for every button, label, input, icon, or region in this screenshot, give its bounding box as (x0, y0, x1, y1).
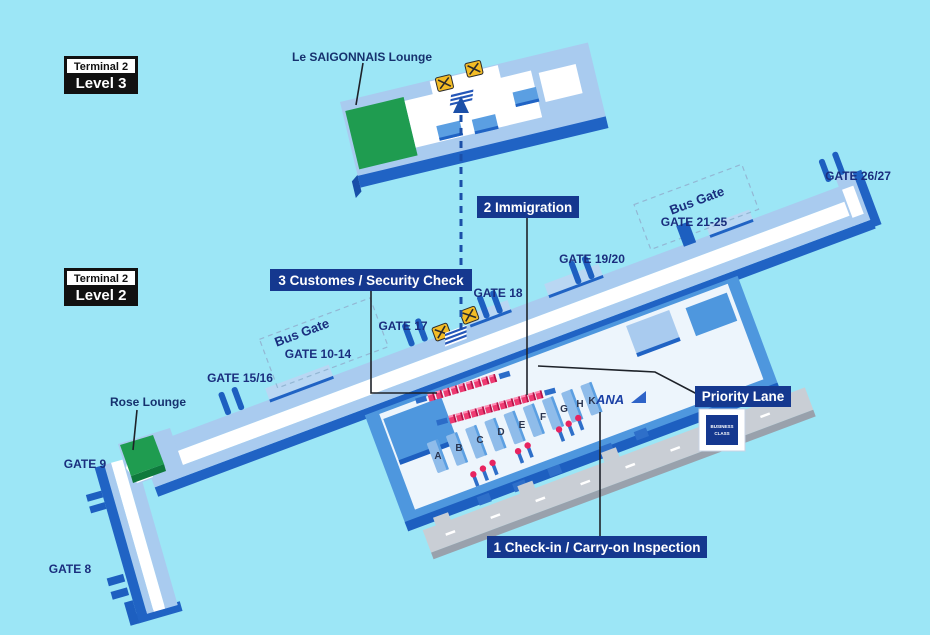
counter-a-label: A (434, 451, 441, 462)
customs-security-label: 3 Customes / Security Check (278, 273, 464, 288)
saigonnais-lounge-label: Le SAIGONNAIS Lounge (292, 50, 432, 64)
gate-9-label: GATE 9 (64, 457, 107, 471)
gate-19-20-label: GATE 19/20 (559, 252, 625, 266)
escalator-icon (465, 60, 484, 77)
escalator-icon (435, 74, 454, 91)
callout-checkin: 1 Check-in / Carry-on Inspection (487, 536, 707, 558)
rose-lounge-label: Rose Lounge (110, 395, 186, 409)
counter-g-label: G (560, 404, 568, 415)
counter-d-label: D (497, 427, 504, 438)
gate-26-27-label: GATE 26/27 (825, 169, 891, 183)
gate-18-label: GATE 18 (473, 286, 522, 300)
immigration-label: 2 Immigration (484, 200, 573, 215)
counter-b-label: B (455, 443, 462, 454)
level3-badge: Terminal 2 Level 3 (64, 56, 138, 94)
counter-e-label: E (519, 420, 526, 431)
checkin-label: 1 Check-in / Carry-on Inspection (493, 540, 700, 555)
business-class-badge: BUSINESS CLASS (699, 409, 745, 451)
counter-c-label: C (476, 435, 483, 446)
business-class-line1: BUSINESS (710, 424, 733, 429)
priority-lane-label: Priority Lane (702, 389, 785, 404)
business-class-line2: CLASS (714, 431, 729, 436)
counter-h-label: H (576, 399, 583, 410)
level2-terminal-label: Terminal 2 (74, 273, 128, 285)
callout-priority-lane: Priority Lane (695, 386, 791, 407)
callout-immigration: 2 Immigration (477, 196, 579, 218)
counter-f-label: F (540, 412, 546, 423)
level3-level-label: Level 3 (76, 75, 127, 92)
level2-badge: Terminal 2 Level 2 (64, 268, 138, 306)
airport-terminal-map: Terminal 2 Level 3 Terminal 2 Level 2 Le… (0, 0, 930, 635)
callout-customs-security: 3 Customes / Security Check (270, 269, 472, 291)
terminal-map-svg: Terminal 2 Level 3 Terminal 2 Level 2 Le… (0, 0, 930, 635)
gate-10-14-label: GATE 10-14 (285, 347, 352, 361)
gate-21-25-label: GATE 21-25 (661, 215, 728, 229)
ana-logo-text: ANA (595, 392, 624, 407)
gate-15-16-label: GATE 15/16 (207, 371, 273, 385)
level2-level-label: Level 2 (76, 287, 127, 304)
gate-8-label: GATE 8 (49, 562, 92, 576)
gate-17-label: GATE 17 (378, 319, 427, 333)
level3-terminal-label: Terminal 2 (74, 61, 128, 73)
